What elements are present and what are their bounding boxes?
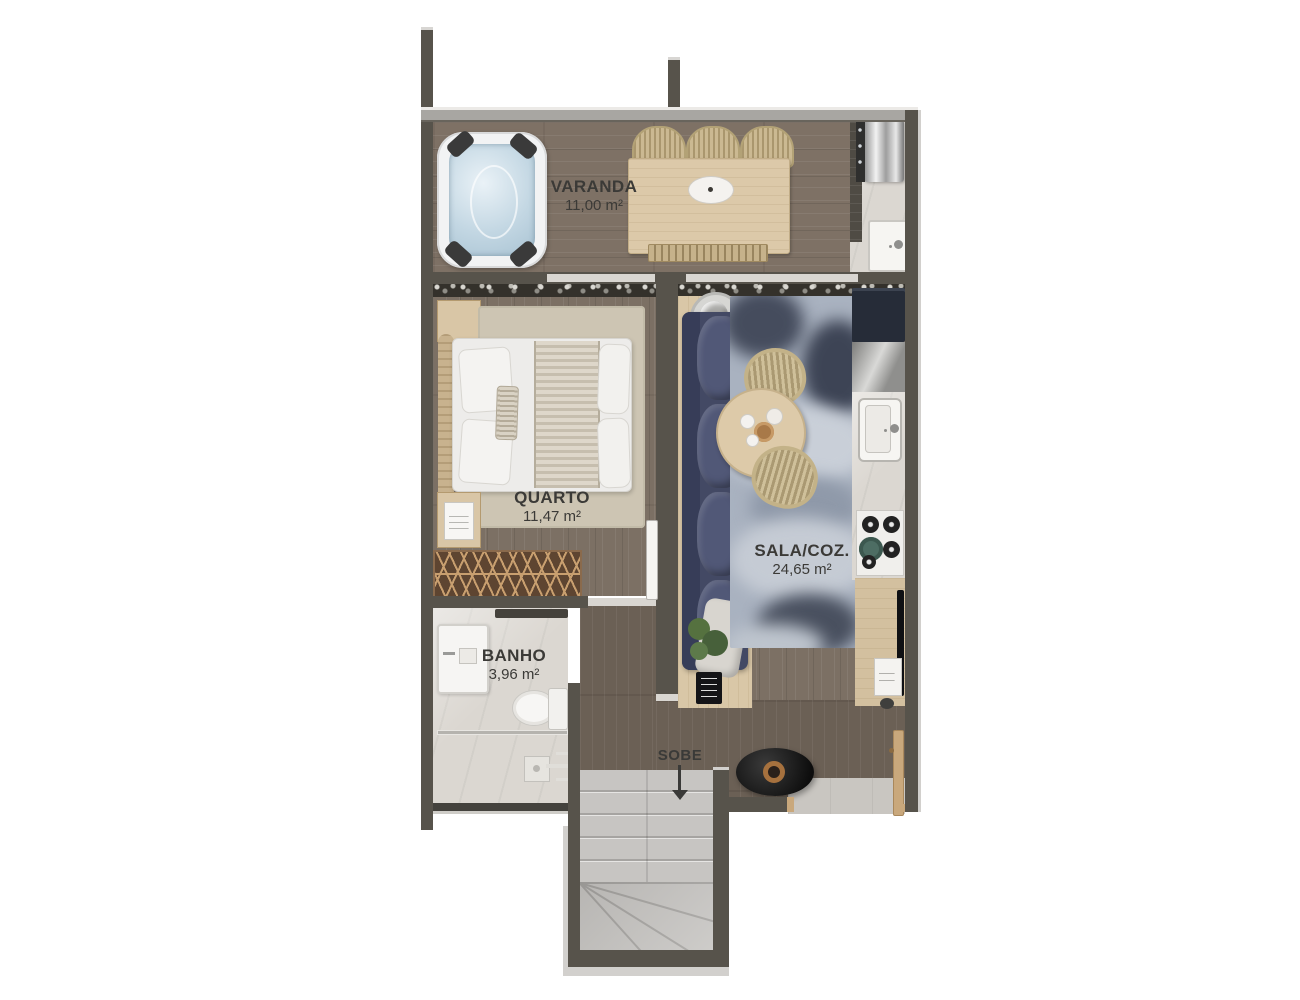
stair-divider: [646, 770, 648, 882]
shower-glass-partition: [437, 730, 568, 735]
bed-side-pillow: [597, 343, 631, 414]
hall-bottom-wall: [727, 797, 787, 812]
central-wall: [656, 272, 678, 694]
table-cup: [740, 414, 755, 429]
burner: [862, 555, 876, 569]
varanda-name: VARANDA: [533, 176, 655, 197]
varanda-area: 11,00 m²: [533, 197, 655, 216]
banho-window: [433, 803, 568, 814]
quarto-door-leaf: [646, 520, 658, 600]
door-frame-post: [787, 797, 794, 812]
sala-name: SALA/COZ.: [742, 540, 862, 561]
table-cup: [746, 434, 759, 447]
kitchen-sink: [858, 398, 902, 462]
varanda-label: VARANDA 11,00 m²: [533, 176, 655, 216]
bed-runner: [534, 341, 600, 488]
sala-glass-threshold: [686, 274, 858, 282]
floor-plan-canvas: VARANDA 11,00 m² QUARTO 11,47 m² SALA/CO…: [0, 0, 1300, 1000]
sobe-arrow-head: [672, 790, 688, 800]
table-platter-knob: [708, 187, 713, 192]
top-wall-stub: [668, 60, 680, 112]
shower-drain: [524, 756, 550, 782]
kitchen-sink-basin: [865, 405, 891, 453]
burner: [883, 516, 900, 533]
wardrobe: [433, 550, 582, 600]
shower-handle: [556, 778, 568, 781]
floor-magazine: [696, 672, 722, 704]
sala-area: 24,65 m²: [742, 561, 862, 580]
banho-name: BANHO: [454, 645, 574, 666]
grill-side-panel: [856, 120, 865, 182]
sobe-arrow-line: [678, 765, 681, 791]
toilet-tank: [548, 688, 568, 730]
burner: [862, 516, 879, 533]
varanda-bench: [648, 244, 768, 262]
banho-door-leaf: [495, 609, 568, 618]
banho-area: 3,96 m²: [454, 666, 574, 685]
fire-bowl-ring: [763, 761, 785, 783]
entry-door-handle: [889, 748, 894, 753]
quarto-bottom-wall: [421, 596, 588, 608]
banho-stair-wall: [568, 683, 580, 967]
quarto-label: QUARTO 11,47 m²: [492, 487, 612, 527]
sideboard-bowl: [880, 698, 894, 709]
shower-handle: [556, 752, 568, 755]
left-wall: [421, 30, 433, 830]
plant: [690, 642, 708, 660]
hot-tub-seat-oval: [470, 165, 518, 239]
decor-fire-bowl: [736, 748, 814, 796]
quarto-curtain-strip: [433, 282, 656, 297]
table-plate: [766, 408, 783, 425]
cooktop: [856, 510, 904, 576]
quarto-area: 11,47 m²: [492, 508, 612, 527]
kitchen-faucet: [890, 424, 899, 433]
banho-label: BANHO 3,96 m²: [454, 645, 574, 685]
stair-shade: [580, 882, 713, 952]
outdoor-sink: [868, 220, 910, 272]
central-wall-cap: [656, 694, 678, 701]
magazine-lines: [701, 678, 717, 698]
shower-drain-cap: [533, 765, 540, 772]
kitchen-counter-top: [852, 342, 905, 392]
top-wall: [421, 110, 918, 122]
quarto-name: QUARTO: [492, 487, 612, 508]
quarto-glass-threshold: [547, 274, 655, 282]
accent-pillow: [495, 386, 519, 441]
stair-bottom-wall: [566, 950, 729, 967]
sideboard-book: [874, 658, 902, 696]
fridge: [852, 288, 905, 342]
staircase: [580, 770, 713, 952]
shower-arm: [546, 764, 568, 768]
burner: [883, 541, 900, 558]
outdoor-sink-faucet: [894, 240, 903, 249]
stair-outer-edge-left: [563, 826, 568, 976]
sobe-label: SOBE: [645, 747, 715, 764]
sala-label: SALA/COZ. 24,65 m²: [742, 540, 862, 580]
nightstand-book: [444, 502, 474, 540]
barbecue-grill: [864, 120, 904, 182]
stair-outer-edge: [566, 967, 729, 976]
right-wall: [905, 110, 918, 812]
bed-side-pillow: [597, 417, 631, 488]
